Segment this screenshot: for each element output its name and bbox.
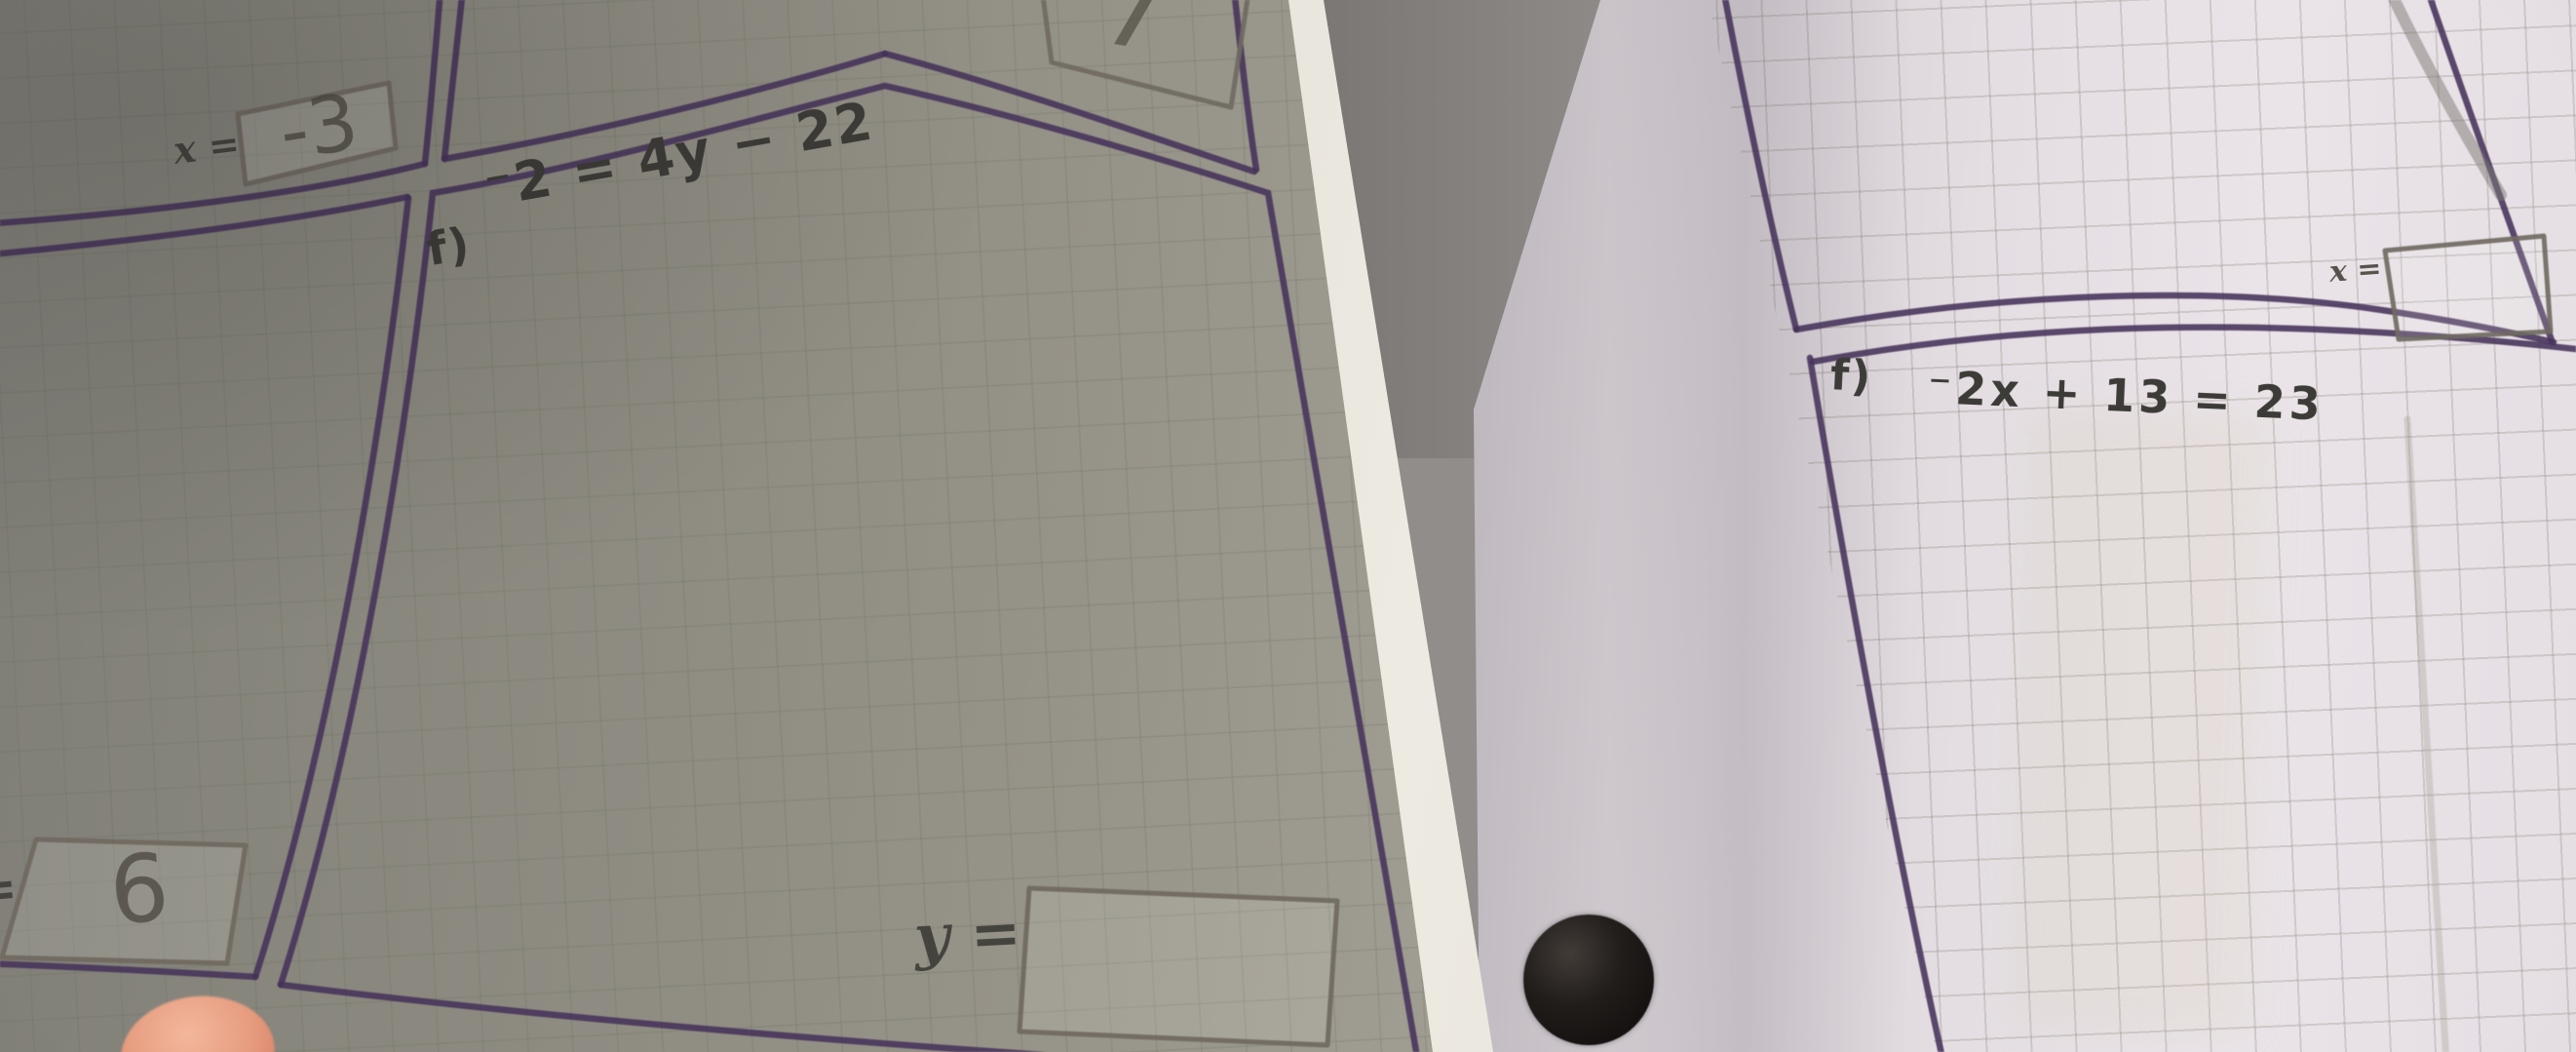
box-bottomleft-right-border — [255, 198, 408, 977]
section-f-label-left: f) — [423, 217, 475, 276]
y-equals-label-left: y = — [912, 896, 1022, 973]
box-f-right-left-border — [1810, 358, 1943, 1052]
answer-box-x-right — [2385, 236, 2551, 339]
section-f-label-right: f) — [1829, 350, 1874, 402]
box-topleft-bottom-border — [0, 164, 425, 224]
box-topmiddle-left-border — [444, 0, 463, 159]
x-equals-label-left: x = — [172, 121, 243, 173]
box-topleft-right-border — [425, 0, 441, 164]
box-right-top-left-border — [1723, 0, 1796, 330]
box-topright-bottom-border — [885, 54, 1254, 172]
right-page-corner-crease — [2390, 0, 2501, 195]
right-page-faint-line — [2407, 419, 2446, 1052]
answer-box-y-left — [1019, 888, 1337, 1045]
handwritten-answer-six: 6 — [72, 833, 206, 949]
worksheet-photo: x = -3 7 f) ⁻2 = 4y − 22 y = = 6 x = f) … — [0, 0, 2576, 1052]
x-equals-label-right: x = — [2328, 252, 2383, 290]
